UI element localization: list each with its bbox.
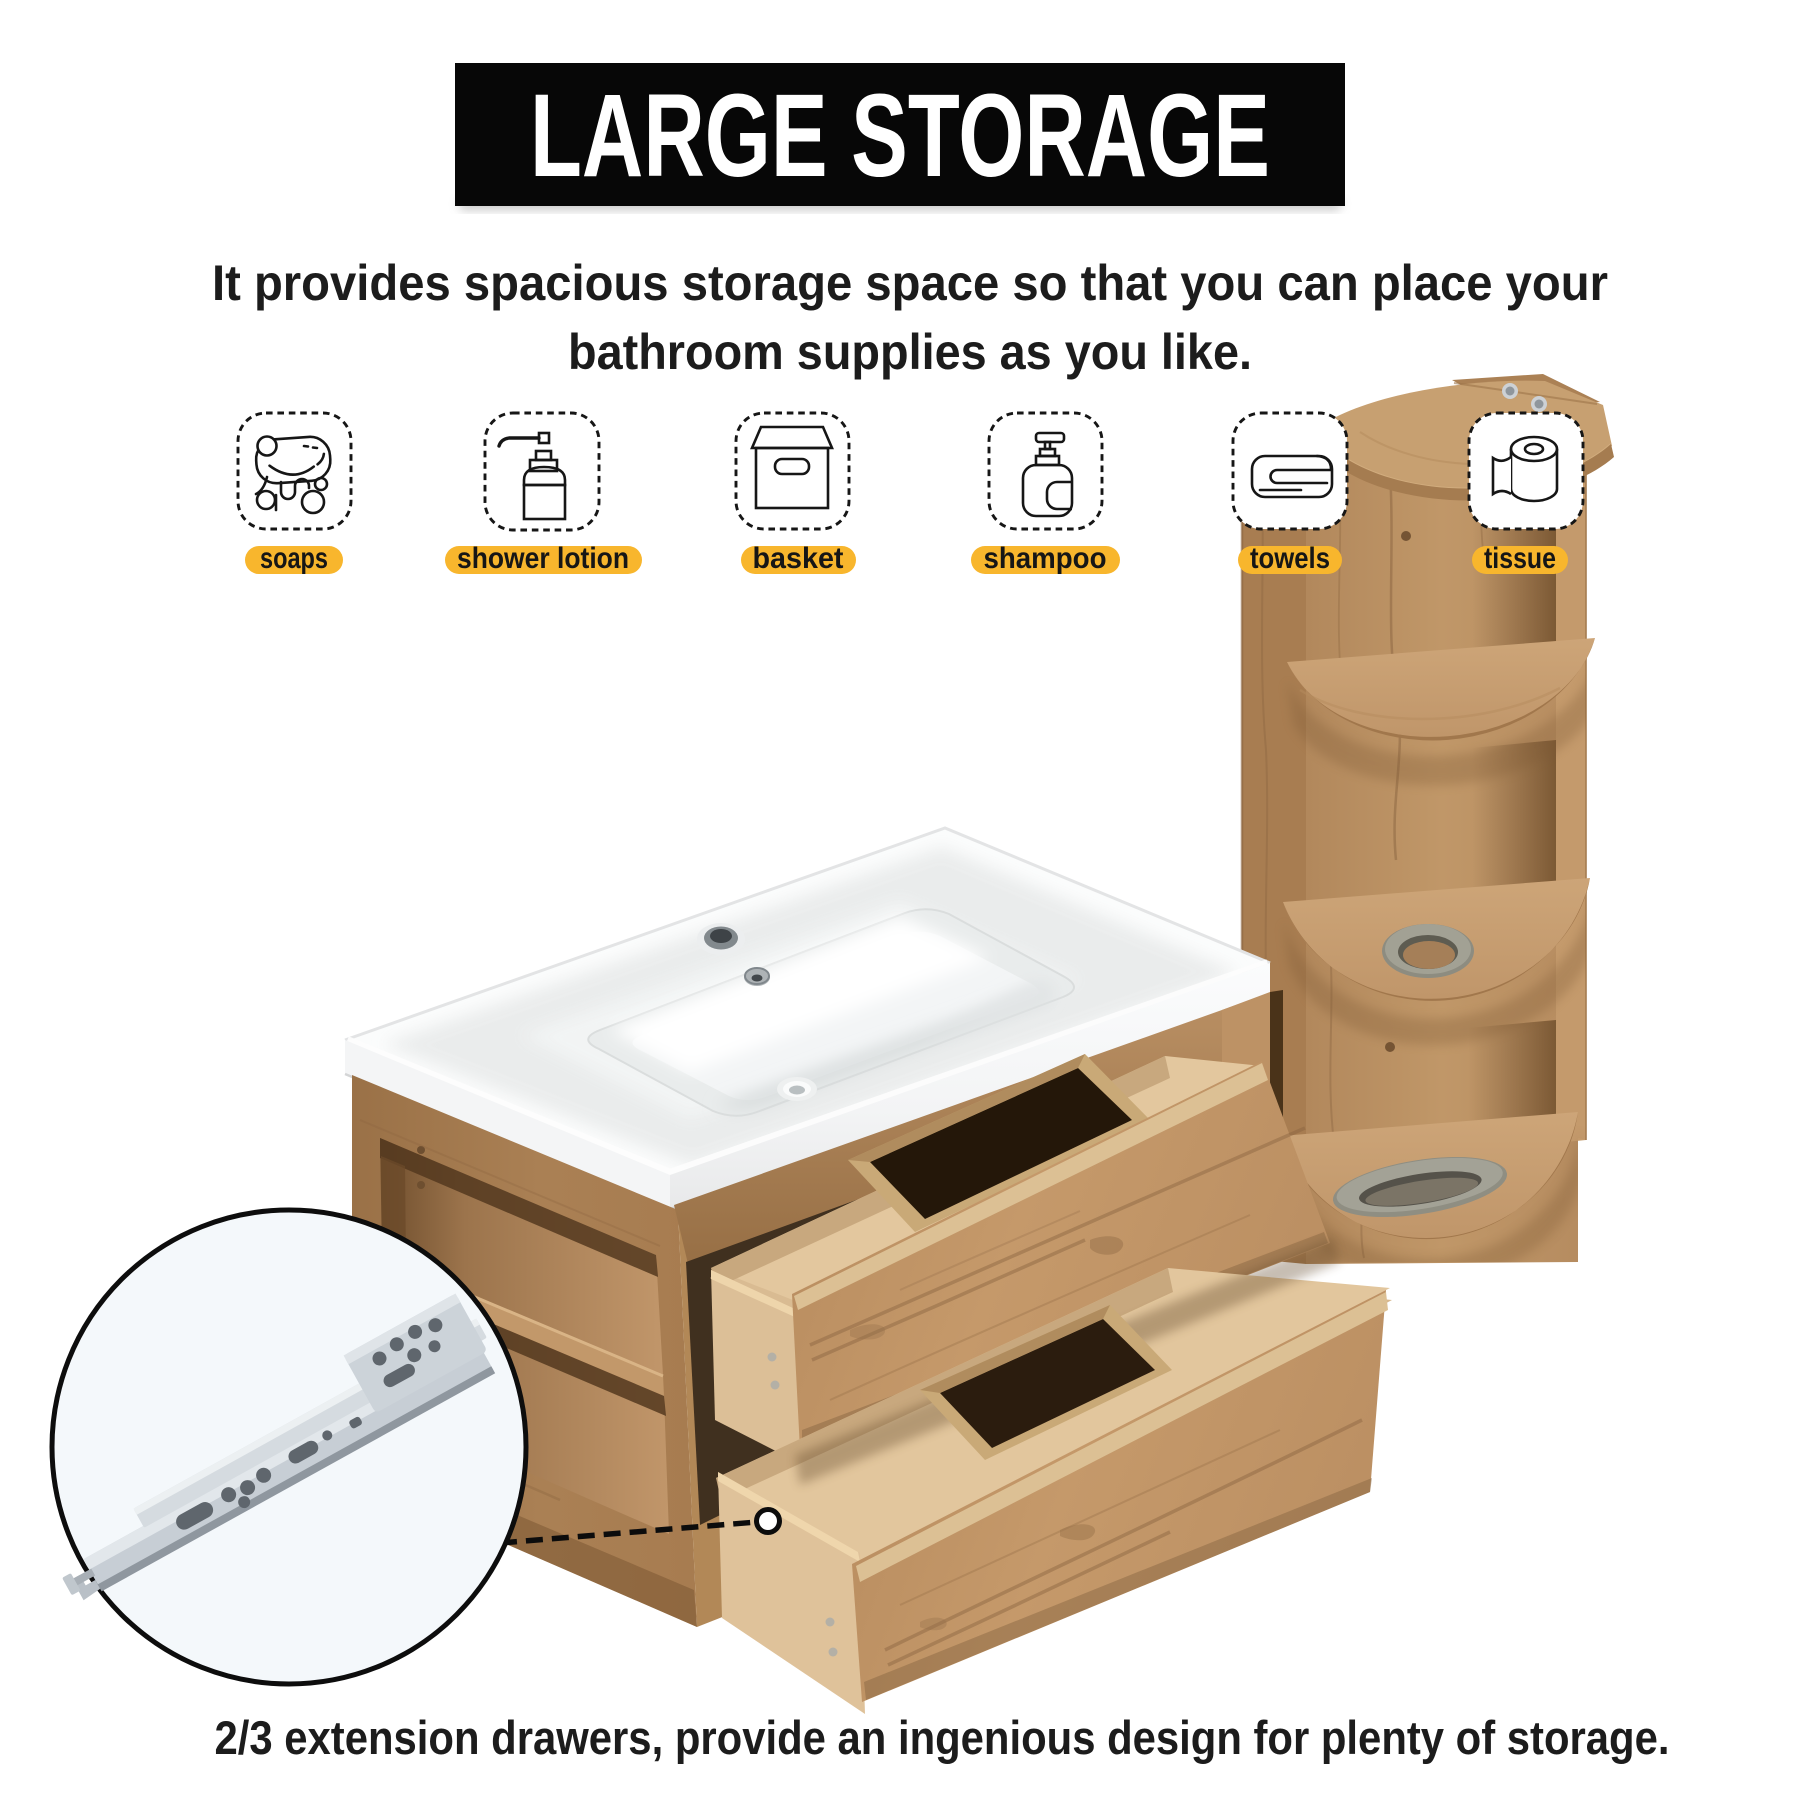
svg-text:LARGE STORAGE: LARGE STORAGE [530,70,1270,202]
svg-text:tissue: tissue [1484,542,1556,575]
svg-text:basket: basket [753,542,844,575]
svg-text:It provides spacious storage s: It provides spacious storage space so th… [212,255,1608,311]
svg-text:bathroom supplies as you like.: bathroom supplies as you like. [568,324,1252,380]
svg-text:shower lotion: shower lotion [457,542,629,575]
svg-text:2/3 extension drawers, provide: 2/3 extension drawers, provide an ingeni… [215,1711,1670,1764]
svg-text:shampoo: shampoo [984,542,1107,575]
svg-text:towels: towels [1250,542,1330,575]
svg-text:soaps: soaps [260,542,328,575]
